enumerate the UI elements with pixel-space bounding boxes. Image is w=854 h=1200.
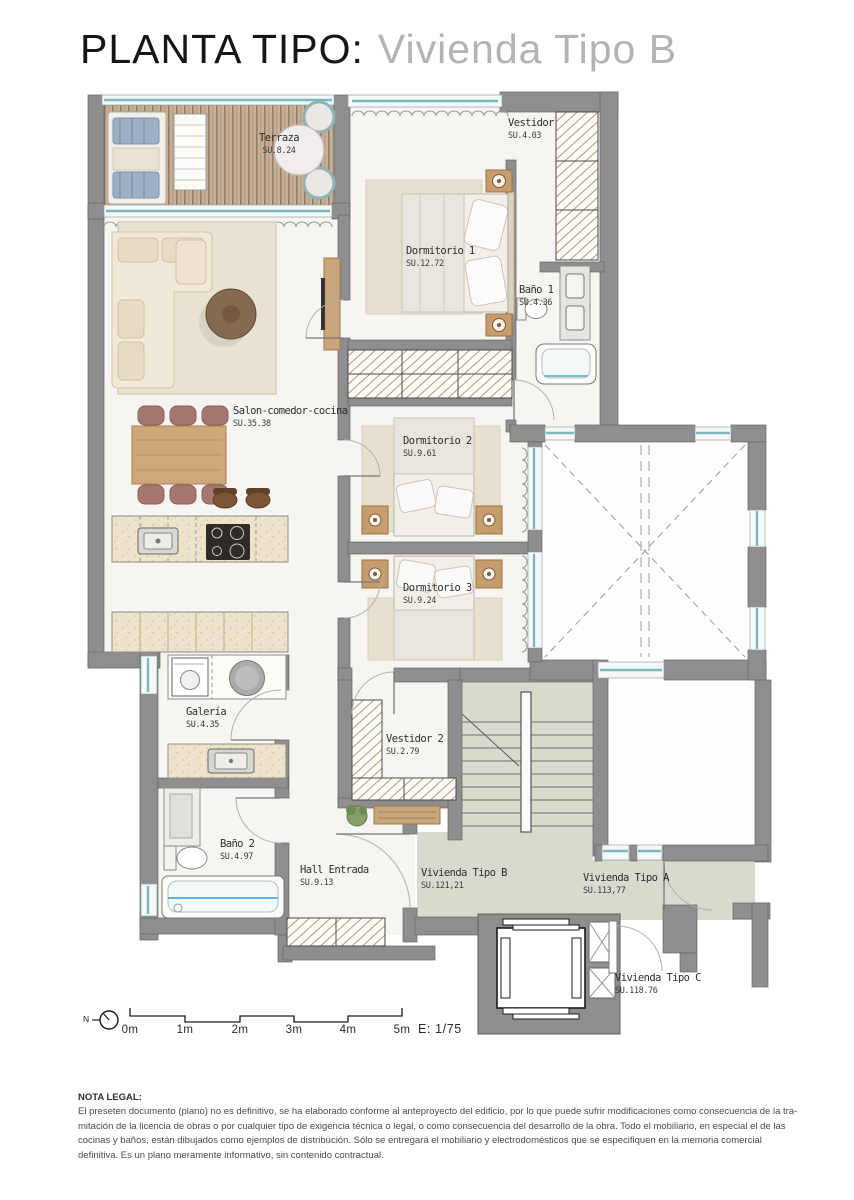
room-label-vestidor: Vestidor SU.4.03 (508, 117, 554, 142)
galeria-sink-counter (168, 744, 286, 778)
terrace-lounger (108, 112, 166, 204)
legal-body: El preseten documento (plano) no es defi… (78, 1105, 798, 1164)
scale-tick-1m: 1m (172, 1024, 198, 1036)
toilet (177, 847, 207, 869)
room-label-hall-entrada: Hall Entrada SU.9.13 (300, 864, 369, 889)
vivienda-a-floor (608, 682, 755, 845)
room-area: SU.113,77 (583, 886, 669, 897)
scale-tick-2m: 2m (227, 1024, 253, 1036)
north-letter: N (83, 1014, 89, 1024)
room-name: Dormitorio 3 (403, 582, 472, 596)
room-name: Hall Entrada (300, 864, 369, 878)
room-name: Baño 2 (220, 838, 254, 852)
legal-note: NOTA LEGAL: El preseten documento (plano… (78, 1092, 798, 1164)
room-label-vivienda-c: Vivienda Tipo C SU.118.76 (615, 972, 701, 997)
room-label-bano-2: Baño 2 SU.4.97 (220, 838, 254, 863)
room-name: Baño 1 (519, 284, 553, 298)
hall-plant (346, 805, 367, 826)
terrace-bench (174, 114, 206, 190)
title-main: PLANTA TIPO: (80, 26, 364, 72)
room-area: SU.4.35 (186, 720, 226, 731)
room-label-dormitorio-2: Dormitorio 2 SU.9.61 (403, 435, 472, 460)
room-name: Vestidor (508, 117, 554, 131)
kitchen-counter (112, 516, 288, 562)
bed-dormitorio-3 (362, 556, 502, 660)
scale-ratio: E: 1/75 (418, 1022, 462, 1036)
floorplan-page: PLANTA TIPO:Vivienda Tipo B Terraza SU.8… (0, 0, 854, 1200)
cooktop (206, 524, 250, 560)
room-label-vivienda-a: Vivienda Tipo A SU.113,77 (583, 872, 669, 897)
scale-tick-3m: 3m (281, 1024, 307, 1036)
room-area: SU.4.03 (508, 131, 554, 142)
room-area: SU.9.61 (403, 449, 472, 460)
room-name: Vivienda Tipo B (421, 867, 507, 881)
galeria-appliances (168, 655, 286, 699)
room-area: SU.35.38 (233, 419, 347, 430)
stair-handrail (521, 692, 531, 832)
scale-tick-4m: 4m (335, 1024, 361, 1036)
kitchen-lower-cabinets (112, 612, 288, 652)
room-label-galeria: Galería SU.4.35 (186, 706, 226, 731)
room-name: Vivienda Tipo C (615, 972, 701, 986)
room-label-dormitorio-3: Dormitorio 3 SU.9.24 (403, 582, 472, 607)
room-area: SU.12.72 (406, 259, 475, 270)
room-label-bano-1: Baño 1 SU.4.36 (519, 284, 553, 309)
room-name: Galería (186, 706, 226, 720)
room-name: Dormitorio 1 (406, 245, 475, 259)
room-area: SU.4.97 (220, 852, 254, 863)
room-name: Dormitorio 2 (403, 435, 472, 449)
elevator (478, 914, 620, 1034)
room-area: SU.9.13 (300, 878, 369, 889)
room-area: SU.118.76 (615, 986, 701, 997)
room-area: SU.4.36 (519, 298, 553, 309)
scale-bar (130, 1008, 402, 1022)
room-label-salon: Salon-comedor-cocina SU.35.38 (233, 405, 347, 430)
hall-bench (374, 806, 440, 824)
room-name: Salon-comedor-cocina (233, 405, 347, 419)
room-label-dormitorio-1: Dormitorio 1 SU.12.72 (406, 245, 475, 270)
tv-unit (321, 258, 340, 350)
room-name: Vestidor 2 (386, 733, 443, 747)
page-title: PLANTA TIPO:Vivienda Tipo B (80, 26, 677, 73)
room-area: SU.2.79 (386, 747, 443, 758)
north-indicator (92, 1011, 118, 1029)
room-name: Vivienda Tipo A (583, 872, 669, 886)
room-label-vestidor-2: Vestidor 2 SU.2.79 (386, 733, 443, 758)
title-sub: Vivienda Tipo B (378, 26, 677, 72)
scale-tick-5m: 5m (389, 1024, 415, 1036)
scale-tick-0m: 0m (117, 1024, 143, 1036)
room-area: SU.8.24 (262, 146, 295, 157)
room-area: SU.121,21 (421, 881, 507, 892)
room-name: Terraza (259, 132, 299, 146)
room-label-vivienda-b: Vivienda Tipo B SU.121,21 (421, 867, 507, 892)
legal-heading: NOTA LEGAL: (78, 1092, 798, 1103)
room-area: SU.9.24 (403, 596, 472, 607)
room-label-terraza: Terraza SU.8.24 (240, 132, 318, 157)
toilet-tank (164, 846, 176, 870)
